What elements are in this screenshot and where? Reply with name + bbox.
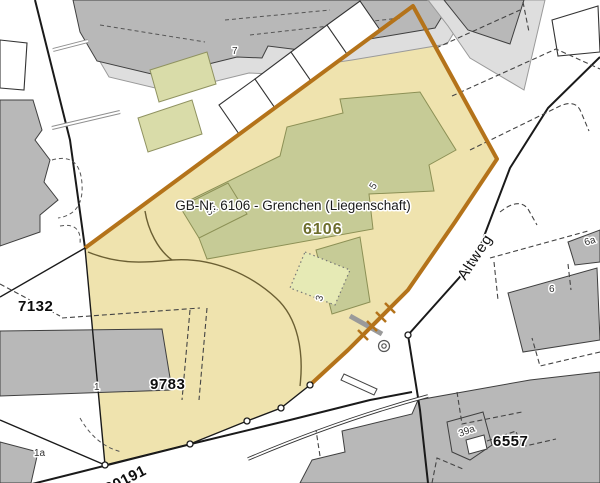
building-outline-top-right[interactable] [552, 6, 600, 56]
building-bottom-left[interactable] [0, 442, 38, 483]
house-number-7: 7 [232, 46, 238, 57]
building-outline-top-left[interactable] [0, 40, 27, 90]
house-number-6: 6 [549, 284, 555, 295]
street-label-altweg: Altweg [454, 231, 496, 283]
building-6a[interactable] [568, 230, 600, 265]
house-number-1a: 1a [34, 448, 46, 459]
selected-parcel-label: 6106 [303, 221, 343, 238]
building-6[interactable] [508, 268, 600, 352]
building-left-upper[interactable] [0, 100, 58, 246]
building-left-lower[interactable] [0, 329, 172, 396]
wall-outline [341, 374, 377, 395]
house-number-1: 1 [94, 382, 100, 393]
parcel-label-7132: 7132 [18, 298, 53, 315]
cadastral-map-canvas[interactable]: 7132 9783 6557 20191 6106 Altweg 7 5a 5 … [0, 0, 600, 483]
parcel-label-6557: 6557 [493, 433, 528, 450]
utility-symbol [379, 341, 390, 352]
parcel-label-9783: 9783 [150, 376, 185, 393]
parcel-tooltip: GB-Nr. 6106 - Grenchen (Liegenschaft) [175, 198, 411, 213]
